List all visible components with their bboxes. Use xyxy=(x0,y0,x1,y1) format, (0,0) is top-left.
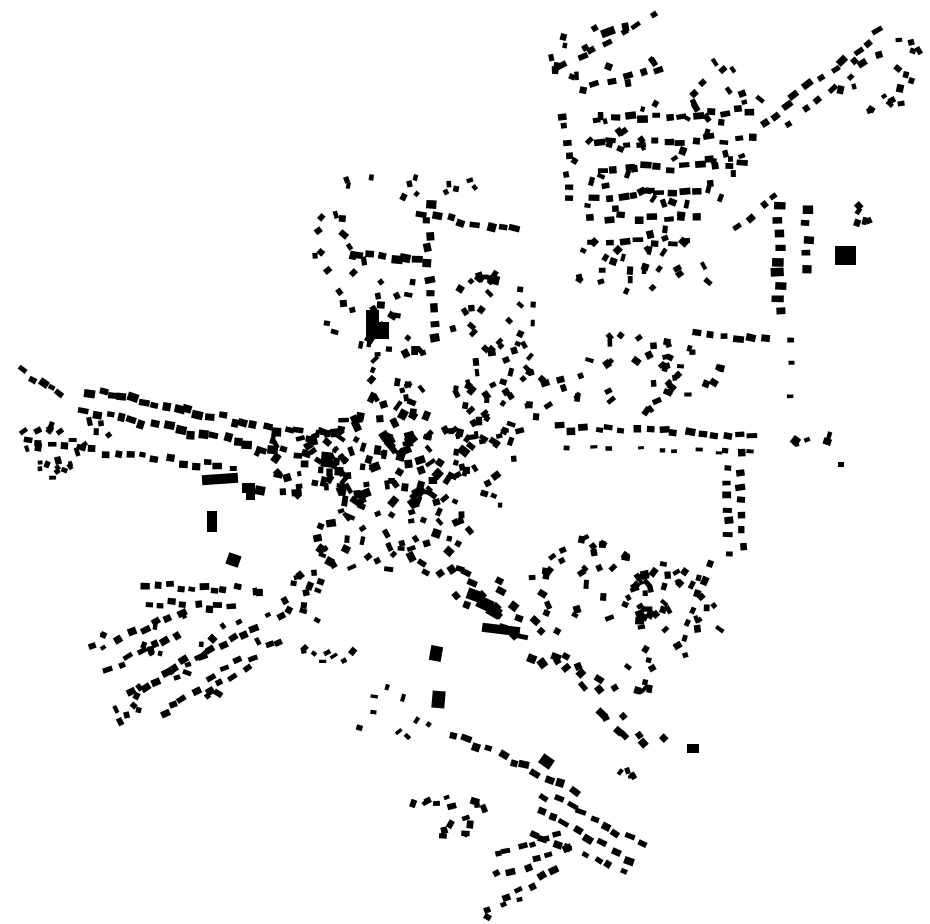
building-footprint xyxy=(648,284,656,292)
building-footprint xyxy=(623,856,635,866)
building-footprint xyxy=(514,886,523,894)
building-footprint xyxy=(746,449,754,454)
building-footprint xyxy=(648,567,658,578)
building-footprint xyxy=(775,230,785,238)
building-footprint xyxy=(599,268,606,273)
building-footprint xyxy=(660,426,670,433)
building-footprint xyxy=(455,219,465,228)
building-footprint xyxy=(694,625,701,633)
building-footprint xyxy=(435,568,445,578)
building-footprint xyxy=(502,356,511,364)
building-footprint xyxy=(341,544,351,554)
building-footprint xyxy=(423,243,432,253)
building-footprint xyxy=(746,433,757,438)
building-footprint xyxy=(417,558,427,567)
building-footprint xyxy=(562,843,573,853)
building-footprint xyxy=(233,583,241,590)
building-footprint xyxy=(455,284,465,294)
building-footprint xyxy=(385,542,393,552)
building-footprint xyxy=(374,510,381,517)
building-footprint xyxy=(431,690,445,708)
building-footprint xyxy=(387,311,398,321)
building-footprint xyxy=(43,460,51,468)
building-footprint xyxy=(787,90,799,101)
building-footprint xyxy=(483,913,492,922)
building-footprint xyxy=(776,307,785,314)
building-footprint xyxy=(34,442,42,451)
building-footprint xyxy=(205,673,216,683)
building-footprint xyxy=(555,778,565,788)
building-footprint xyxy=(212,463,222,470)
building-footprint xyxy=(893,64,902,73)
building-footprint xyxy=(604,62,613,71)
building-footprint xyxy=(553,67,559,74)
building-footprint xyxy=(666,114,674,121)
building-footprint xyxy=(514,614,524,623)
building-footprint xyxy=(624,169,632,179)
building-footprint xyxy=(243,663,253,672)
building-footprint xyxy=(395,728,403,735)
building-footprint xyxy=(83,389,95,398)
building-footprint xyxy=(176,694,187,704)
building-footprint xyxy=(160,709,171,719)
building-footprint xyxy=(760,200,769,209)
building-footprint xyxy=(794,441,799,447)
building-footprint xyxy=(801,78,814,90)
building-footprint xyxy=(246,492,255,500)
building-footprint xyxy=(127,626,138,636)
building-footprint xyxy=(828,84,839,94)
building-footprint xyxy=(735,135,743,141)
building-footprint xyxy=(218,640,229,650)
building-footprint xyxy=(760,118,770,128)
building-footprint xyxy=(566,428,575,436)
building-footprint xyxy=(606,195,614,202)
building-footprint xyxy=(609,166,617,174)
building-footprint xyxy=(736,159,748,165)
building-footprint xyxy=(738,449,746,457)
building-footprint xyxy=(404,334,411,341)
building-footprint xyxy=(706,559,714,568)
building-footprint xyxy=(273,638,283,647)
building-footprint xyxy=(340,300,348,308)
building-footprint xyxy=(609,257,618,266)
building-footprint xyxy=(435,507,443,517)
building-footprint xyxy=(641,645,650,654)
building-footprint xyxy=(635,334,643,342)
building-footprint xyxy=(443,794,450,800)
building-footprint xyxy=(863,39,873,48)
building-footprint xyxy=(580,247,587,254)
building-footprint xyxy=(506,421,516,428)
building-footprint xyxy=(651,240,659,247)
building-footprint xyxy=(640,161,652,168)
building-footprint xyxy=(772,217,782,224)
building-footprint xyxy=(293,453,302,459)
building-footprint xyxy=(659,733,669,743)
building-footprint xyxy=(453,385,459,390)
building-footprint xyxy=(597,278,605,285)
building-footprint xyxy=(449,732,457,740)
building-footprint xyxy=(529,615,540,626)
building-footprint xyxy=(802,265,811,273)
building-footprint xyxy=(398,546,405,551)
building-footprint xyxy=(685,427,696,436)
building-footprint xyxy=(127,451,135,458)
building-footprint xyxy=(100,632,105,637)
building-footprint xyxy=(651,380,657,387)
building-footprint xyxy=(555,422,565,429)
building-footprint xyxy=(254,485,265,496)
building-footprint xyxy=(177,586,185,593)
building-footprint xyxy=(113,634,124,644)
building-footprint xyxy=(228,633,239,643)
building-footprint xyxy=(560,384,568,393)
building-footprint xyxy=(579,86,587,94)
building-footprint xyxy=(480,489,489,497)
building-footprint xyxy=(349,250,358,260)
building-footprint xyxy=(462,600,471,609)
building-footprint xyxy=(775,282,786,290)
building-footprint xyxy=(153,623,158,630)
building-footprint xyxy=(624,79,631,87)
building-footprint xyxy=(248,654,259,662)
building-footprint xyxy=(530,301,536,307)
building-footprint xyxy=(423,217,430,223)
building-footprint xyxy=(227,673,238,683)
building-footprint xyxy=(653,190,664,195)
building-footprint xyxy=(317,213,326,222)
building-footprint xyxy=(425,445,433,453)
building-footprint xyxy=(199,641,204,647)
building-footprint xyxy=(660,448,665,452)
building-footprint xyxy=(651,100,659,109)
building-footprint xyxy=(332,210,339,219)
building-footprint xyxy=(772,258,784,267)
building-footprint xyxy=(689,606,696,614)
building-footprint xyxy=(804,236,815,244)
building-footprint xyxy=(136,419,145,429)
building-footprint xyxy=(599,541,606,548)
building-footprint xyxy=(248,624,259,634)
building-footprint xyxy=(412,535,420,543)
building-footprint xyxy=(431,528,442,539)
building-footprint xyxy=(399,192,408,201)
building-footprint xyxy=(518,760,530,769)
building-footprint xyxy=(433,801,440,806)
building-footprint xyxy=(558,557,566,565)
building-footprint xyxy=(847,73,855,81)
building-footprint xyxy=(613,245,623,255)
building-footprint xyxy=(508,224,520,233)
building-footprint xyxy=(315,430,320,438)
building-footprint xyxy=(668,190,677,197)
building-footprint xyxy=(831,65,841,74)
building-footprint xyxy=(735,432,744,438)
building-footprint xyxy=(466,820,473,829)
building-footprint xyxy=(404,733,412,741)
building-footprint xyxy=(191,686,202,696)
building-footprint xyxy=(817,74,826,82)
building-footprint xyxy=(559,546,567,554)
building-footprint xyxy=(198,429,209,439)
building-footprint xyxy=(514,340,521,347)
building-footprint xyxy=(312,253,317,259)
building-footprint xyxy=(857,58,868,69)
building-footprint xyxy=(213,602,222,608)
building-footprint xyxy=(836,85,844,94)
building-footprint xyxy=(586,214,594,221)
building-footprint xyxy=(600,593,607,601)
building-footprint xyxy=(88,642,97,650)
building-footprint xyxy=(603,424,612,430)
building-footprint xyxy=(446,819,455,829)
building-footprint xyxy=(496,433,503,439)
building-footprint xyxy=(625,594,632,601)
building-footprint xyxy=(505,317,513,325)
building-footprint xyxy=(668,241,678,246)
building-footprint xyxy=(738,153,746,159)
building-footprint xyxy=(544,851,553,858)
building-footprint xyxy=(582,833,595,845)
building-footprint xyxy=(722,150,729,158)
building-footprint xyxy=(835,246,856,265)
building-footprint xyxy=(237,418,248,428)
building-footprint xyxy=(736,469,745,477)
building-footprint xyxy=(775,245,785,251)
building-footprint xyxy=(741,99,747,105)
building-footprint xyxy=(461,307,470,316)
building-footprint xyxy=(78,407,89,414)
building-footprint xyxy=(440,494,450,503)
building-footprint xyxy=(605,614,615,622)
building-footprint xyxy=(620,868,628,875)
building-footprint xyxy=(677,211,686,217)
building-footprint xyxy=(637,839,647,848)
building-footprint xyxy=(421,410,431,421)
building-footprint xyxy=(213,689,224,699)
building-footprint xyxy=(902,71,909,78)
building-footprint xyxy=(139,399,151,407)
building-footprint xyxy=(659,248,667,258)
building-footprint xyxy=(135,707,141,714)
building-footprint xyxy=(600,26,616,38)
building-footprint xyxy=(542,567,549,574)
building-footprint xyxy=(680,567,689,576)
building-footprint xyxy=(647,213,657,220)
building-footprint xyxy=(770,267,784,276)
building-footprint xyxy=(370,694,378,699)
building-footprint xyxy=(588,176,595,186)
building-footprint xyxy=(223,432,233,442)
building-footprint xyxy=(529,841,537,848)
building-footprint xyxy=(662,225,668,233)
building-footprint xyxy=(612,205,619,212)
building-footprint xyxy=(597,173,606,180)
building-footprint xyxy=(851,83,856,90)
building-footprint xyxy=(624,832,635,841)
building-footprint xyxy=(803,206,813,214)
building-footprint xyxy=(548,865,560,876)
building-footprint xyxy=(449,325,456,333)
building-footprint xyxy=(590,548,598,556)
building-footprint xyxy=(166,581,174,587)
building-footprint xyxy=(347,563,357,570)
building-footprint xyxy=(557,818,569,828)
building-footprint xyxy=(761,334,770,342)
building-footprint xyxy=(655,265,663,273)
building-footprint xyxy=(623,239,630,244)
building-footprint xyxy=(621,601,629,609)
building-footprint xyxy=(117,412,126,422)
building-footprint xyxy=(313,534,323,543)
building-footprint xyxy=(737,89,746,98)
building-footprint xyxy=(578,681,588,692)
building-footprint xyxy=(390,550,398,558)
building-footprint xyxy=(480,804,488,814)
building-footprint xyxy=(429,645,443,662)
building-footprint xyxy=(693,137,701,144)
building-footprint xyxy=(295,435,305,442)
building-footprint xyxy=(254,637,262,646)
building-footprint xyxy=(364,552,373,561)
building-footprint xyxy=(631,165,638,173)
building-footprint xyxy=(322,437,332,447)
building-footprint xyxy=(241,441,252,450)
building-footprint xyxy=(210,587,218,593)
building-footprint xyxy=(179,461,188,469)
building-footprint xyxy=(48,442,57,447)
building-footprint xyxy=(650,342,657,349)
building-footprint xyxy=(425,721,432,728)
building-footprint xyxy=(619,712,628,721)
building-footprint xyxy=(772,295,784,302)
building-footprint xyxy=(510,346,518,355)
building-footprint xyxy=(475,369,480,377)
building-footprint xyxy=(554,794,565,803)
building-footprint xyxy=(623,71,634,80)
building-footprint xyxy=(533,413,540,420)
building-footprint xyxy=(629,192,637,200)
building-footprint xyxy=(296,483,303,489)
building-footprint xyxy=(692,329,702,337)
building-footprint xyxy=(606,240,614,246)
building-footprint xyxy=(421,568,430,576)
building-footprint xyxy=(661,625,669,633)
building-footprint xyxy=(627,266,634,275)
building-footprint xyxy=(412,256,423,263)
building-footprint xyxy=(561,652,570,661)
building-footprint xyxy=(172,631,182,641)
building-footprint xyxy=(426,232,434,241)
building-footprint xyxy=(664,216,674,222)
building-footprint xyxy=(548,54,554,62)
building-footprint xyxy=(507,368,514,377)
building-footprint xyxy=(429,477,438,484)
building-footprint xyxy=(681,635,687,642)
building-footprint xyxy=(149,455,158,463)
building-footprint xyxy=(706,331,714,339)
building-footprint xyxy=(155,582,162,590)
building-footprint xyxy=(388,511,396,519)
building-footprint xyxy=(684,199,690,208)
building-footprint xyxy=(623,287,630,295)
building-footprint xyxy=(838,462,844,467)
building-footprint xyxy=(397,408,409,421)
building-footprint xyxy=(584,203,591,209)
building-footprint xyxy=(589,80,600,88)
building-footprint xyxy=(505,868,516,877)
building-footprint xyxy=(200,583,210,590)
building-footprint xyxy=(167,598,176,605)
building-footprint xyxy=(208,431,218,439)
building-footprint xyxy=(624,663,632,671)
building-footprint xyxy=(123,711,130,718)
building-footprint xyxy=(349,307,356,314)
building-footprint xyxy=(616,211,625,218)
building-footprint xyxy=(604,216,615,224)
building-footprint xyxy=(86,417,93,427)
building-footprint xyxy=(169,700,178,708)
building-footprint xyxy=(718,119,725,126)
building-footprint xyxy=(387,495,399,508)
building-footprint xyxy=(408,410,418,420)
building-footprint xyxy=(595,564,603,572)
building-footprint xyxy=(377,278,384,285)
building-footprint xyxy=(537,627,546,636)
building-footprint xyxy=(583,580,589,589)
building-footprint xyxy=(688,580,696,590)
building-footprint xyxy=(529,768,541,779)
building-footprint xyxy=(602,38,613,47)
building-footprint xyxy=(291,489,299,497)
building-footprint xyxy=(363,481,370,487)
building-footprint xyxy=(300,602,307,609)
building-footprint xyxy=(468,305,475,312)
building-footprint xyxy=(826,431,833,441)
building-footprint xyxy=(33,426,42,435)
building-footprint xyxy=(605,446,612,450)
building-footprint xyxy=(596,427,604,433)
building-footprint xyxy=(122,652,133,661)
building-footprint xyxy=(98,420,104,426)
building-footprint xyxy=(323,320,330,326)
building-footprint xyxy=(338,418,349,423)
building-footprint xyxy=(787,394,793,398)
building-footprint xyxy=(542,574,549,580)
building-footprint xyxy=(556,376,565,384)
building-footprint xyxy=(330,652,338,659)
building-footprint xyxy=(544,600,552,610)
building-footprint xyxy=(348,647,357,657)
building-footprint xyxy=(801,250,810,256)
building-footprint xyxy=(606,395,616,404)
building-footprint xyxy=(553,627,561,635)
building-footprint xyxy=(536,870,547,880)
building-footprint xyxy=(604,387,613,395)
building-footprint xyxy=(166,453,175,462)
building-footprint xyxy=(373,557,381,565)
building-footprint xyxy=(596,838,607,847)
building-footprint xyxy=(536,657,548,669)
building-footprint xyxy=(107,411,115,418)
building-footprint xyxy=(485,289,494,298)
building-footprint xyxy=(734,105,742,112)
building-footprint xyxy=(532,855,541,863)
building-footprint xyxy=(664,571,671,579)
building-footprint xyxy=(54,388,65,398)
building-footprint xyxy=(454,540,462,548)
